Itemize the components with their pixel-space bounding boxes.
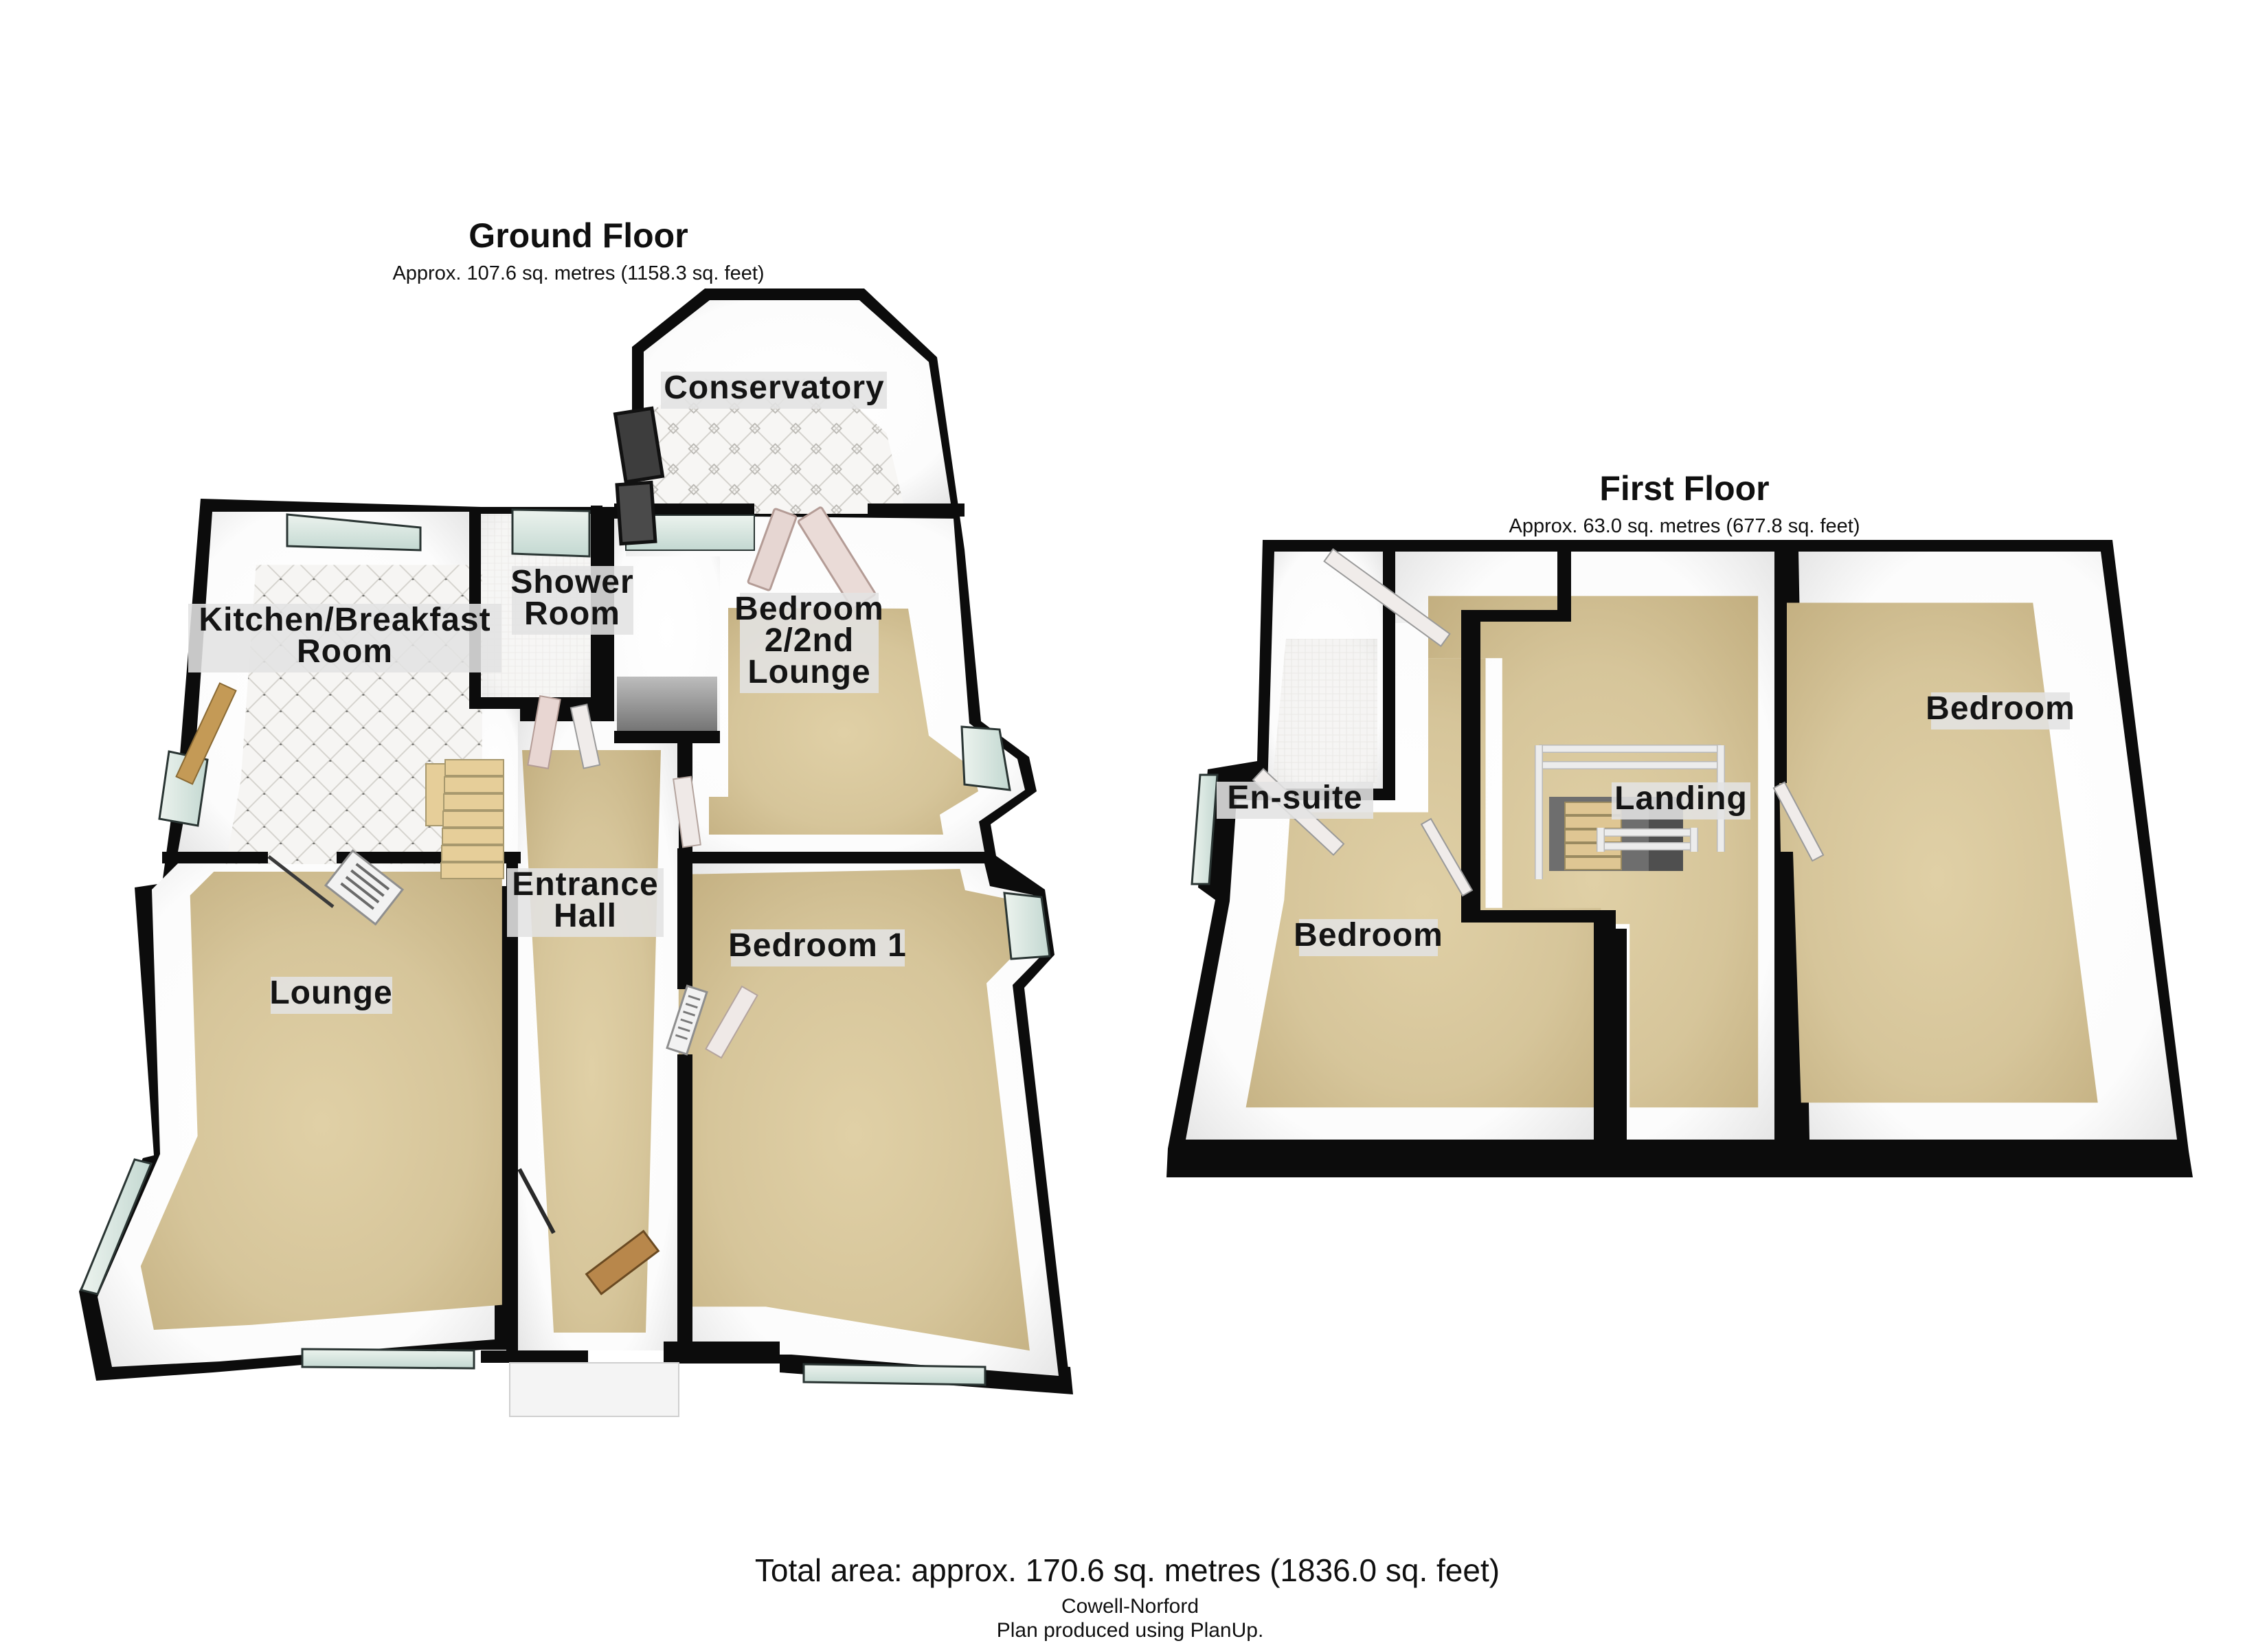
svg-text:Total area: approx. 170.6 sq.: Total area: approx. 170.6 sq. metres (18… <box>755 1552 1500 1588</box>
svg-text:Lounge: Lounge <box>269 975 392 1011</box>
svg-text:Room: Room <box>524 596 620 632</box>
svg-text:Hall: Hall <box>554 898 617 934</box>
svg-text:Bedroom: Bedroom <box>1294 917 1443 953</box>
svg-text:Approx. 107.6 sq. metres (1158: Approx. 107.6 sq. metres (1158.3 sq. fee… <box>392 262 764 284</box>
svg-text:Bedroom: Bedroom <box>1926 690 2075 727</box>
svg-text:Plan produced using PlanUp.: Plan produced using PlanUp. <box>997 1619 1264 1642</box>
svg-text:Cowell-Norford: Cowell-Norford <box>1061 1595 1199 1618</box>
svg-text:Landing: Landing <box>1614 780 1748 817</box>
svg-text:En-suite: En-suite <box>1227 780 1362 816</box>
svg-text:Bedroom 1: Bedroom 1 <box>728 927 907 964</box>
svg-text:Ground Floor: Ground Floor <box>469 216 688 255</box>
svg-text:Approx. 63.0 sq. metres (677.8: Approx. 63.0 sq. metres (677.8 sq. feet) <box>1509 515 1860 537</box>
svg-text:Lounge: Lounge <box>747 654 870 690</box>
svg-text:Room: Room <box>297 633 393 670</box>
svg-text:First Floor: First Floor <box>1599 469 1769 508</box>
svg-text:Conservatory: Conservatory <box>664 370 884 406</box>
